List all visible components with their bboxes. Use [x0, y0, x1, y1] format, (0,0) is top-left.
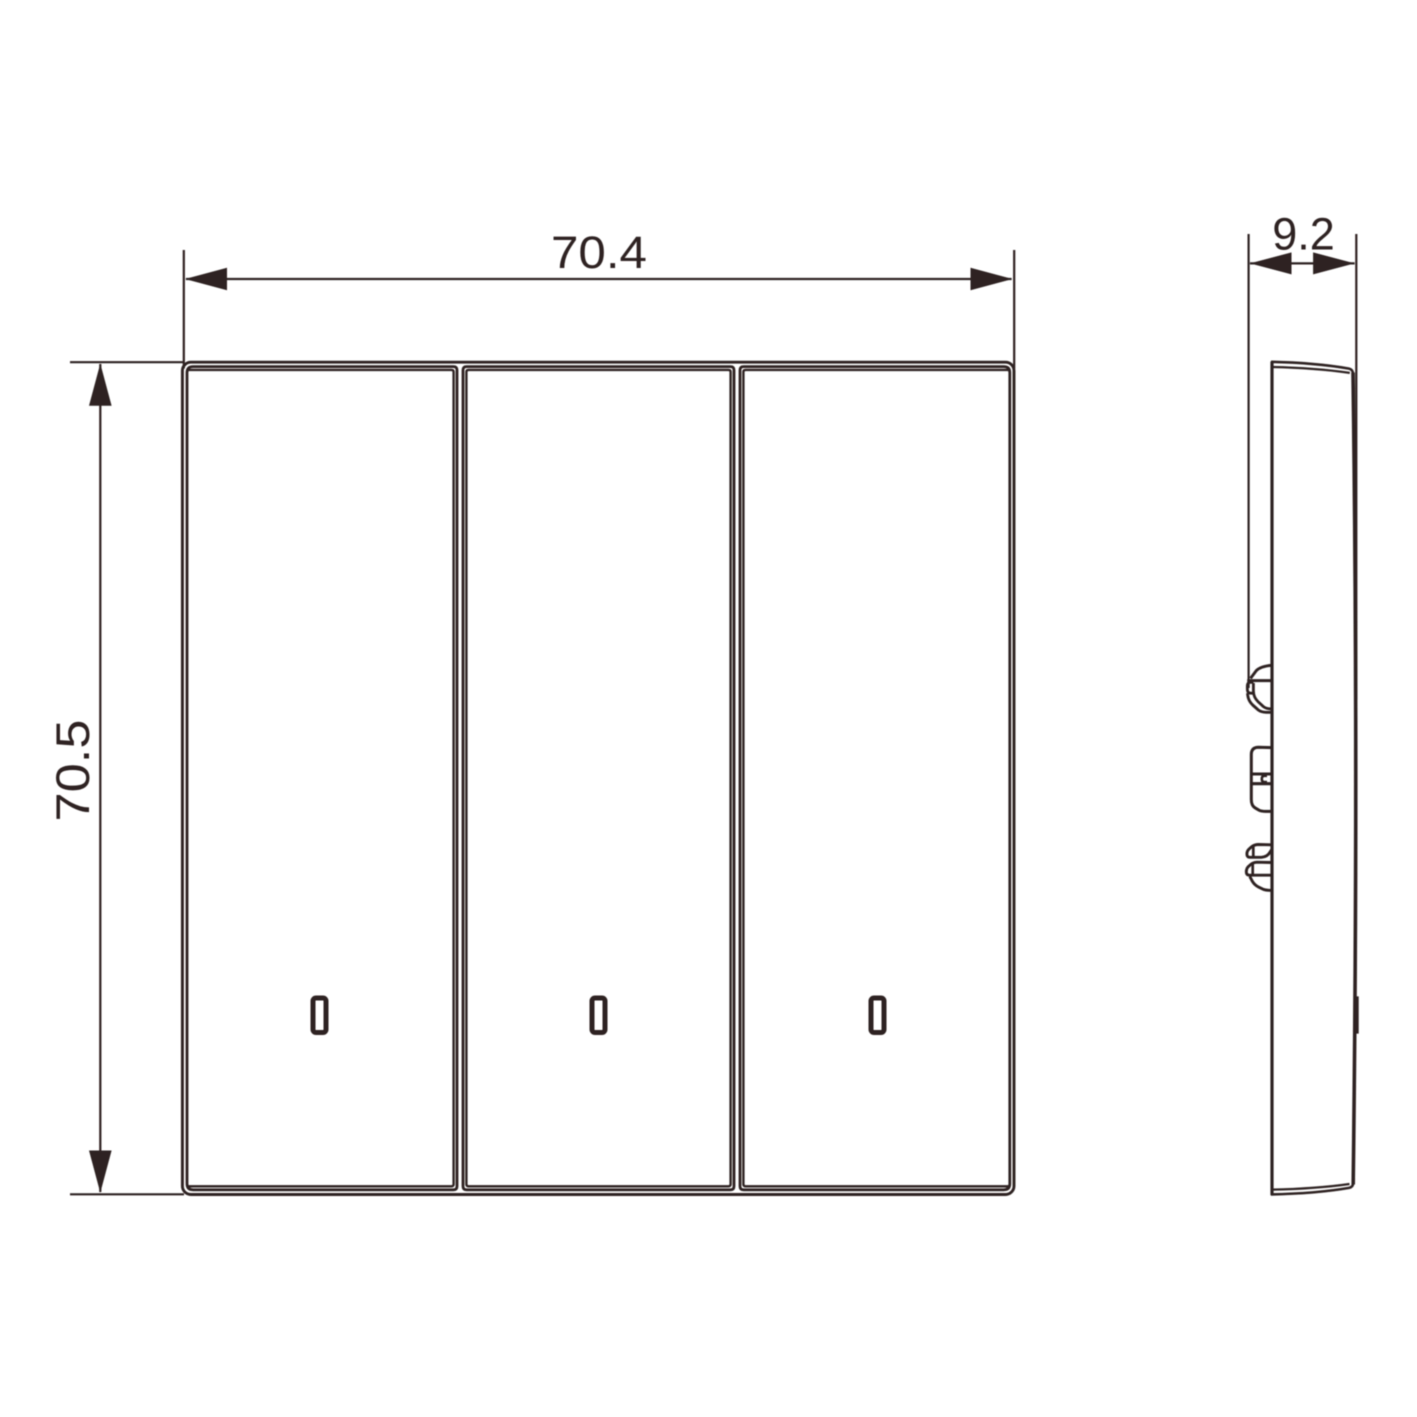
- svg-text:9.2: 9.2: [1272, 209, 1335, 260]
- svg-text:70.5: 70.5: [46, 720, 99, 822]
- svg-text:70.4: 70.4: [551, 227, 647, 278]
